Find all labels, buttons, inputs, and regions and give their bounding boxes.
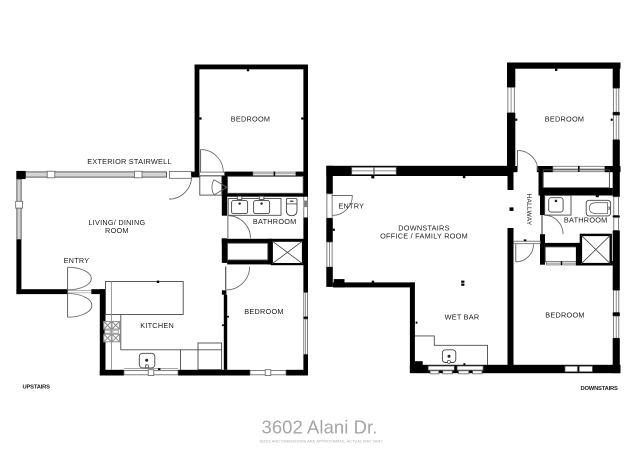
svg-text:BEDROOM: BEDROOM — [545, 114, 584, 123]
svg-text:EXTERIOR STAIRWELL: EXTERIOR STAIRWELL — [87, 157, 172, 166]
svg-text:UPSTAIRS: UPSTAIRS — [23, 384, 51, 390]
svg-text:BEDROOM: BEDROOM — [231, 114, 270, 123]
svg-text:BATHROOM: BATHROOM — [564, 216, 608, 225]
svg-text:BEDROOM: BEDROOM — [545, 311, 584, 320]
svg-text:BATHROOM: BATHROOM — [253, 217, 297, 226]
svg-text:ENTRY: ENTRY — [64, 256, 90, 265]
svg-text:SIZES AND DIMENSIONS ARE APPRO: SIZES AND DIMENSIONS ARE APPROXIMATE, AC… — [259, 440, 383, 444]
svg-text:BEDROOM: BEDROOM — [244, 307, 283, 316]
svg-text:HALLWAY: HALLWAY — [525, 193, 532, 225]
svg-text:DOWNSTAIRS: DOWNSTAIRS — [581, 386, 619, 392]
svg-text:KITCHEN: KITCHEN — [140, 321, 174, 330]
svg-text:ENTRY: ENTRY — [338, 202, 364, 211]
svg-text:3602 Alani Dr.: 3602 Alani Dr. — [262, 417, 378, 438]
svg-text:WET BAR: WET BAR — [445, 313, 480, 322]
svg-text:OFFICE / FAMILY ROOM: OFFICE / FAMILY ROOM — [380, 232, 468, 241]
svg-text:ROOM: ROOM — [105, 226, 129, 235]
